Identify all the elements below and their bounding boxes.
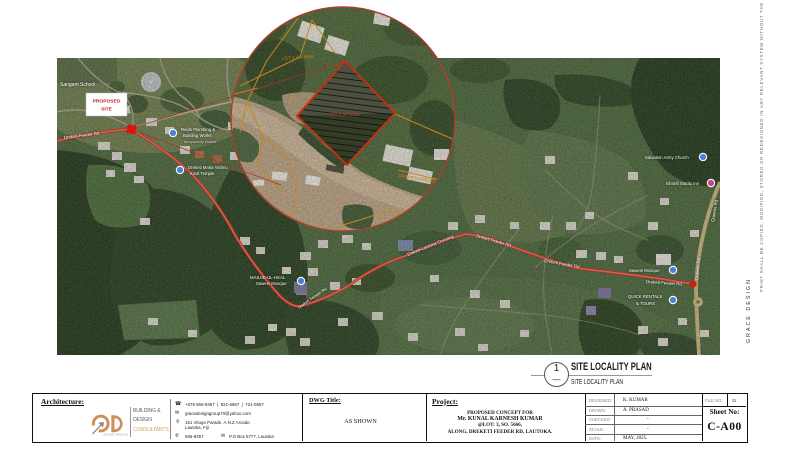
svg-text:Saweni Mosque: Saweni Mosque	[256, 281, 287, 286]
svg-text:Kovil Temple: Kovil Temple	[190, 171, 215, 176]
svg-text:MASJID-UL-HEAL: MASJID-UL-HEAL	[250, 275, 286, 280]
svg-text:PROPOSED: PROPOSED	[93, 99, 121, 105]
svg-text:Sangam School: Sangam School	[60, 82, 95, 88]
svg-text:Dreketi Maha Vishnu: Dreketi Maha Vishnu	[188, 165, 228, 170]
svg-text:LOT 3 SO 5666: LOT 3 SO 5666	[329, 112, 360, 117]
svg-text:Saweni Mosque: Saweni Mosque	[629, 268, 660, 273]
svg-text:Temporarily closed: Temporarily closed	[183, 139, 216, 144]
svg-text:SITE: SITE	[101, 107, 113, 113]
svg-text:& TOURS: & TOURS	[636, 301, 655, 306]
svg-text:Salvation Army Church: Salvation Army Church	[645, 155, 689, 160]
svg-text:QUICK RENTALS: QUICK RENTALS	[628, 294, 662, 299]
svg-text:GRACE DESIGN: GRACE DESIGN	[103, 433, 128, 436]
svg-text:Reids Plumbing &: Reids Plumbing &	[181, 127, 215, 132]
svg-text:Building Works: Building Works	[183, 133, 212, 138]
svg-text:Ishrafil Studio Inn: Ishrafil Studio Inn	[666, 181, 700, 186]
